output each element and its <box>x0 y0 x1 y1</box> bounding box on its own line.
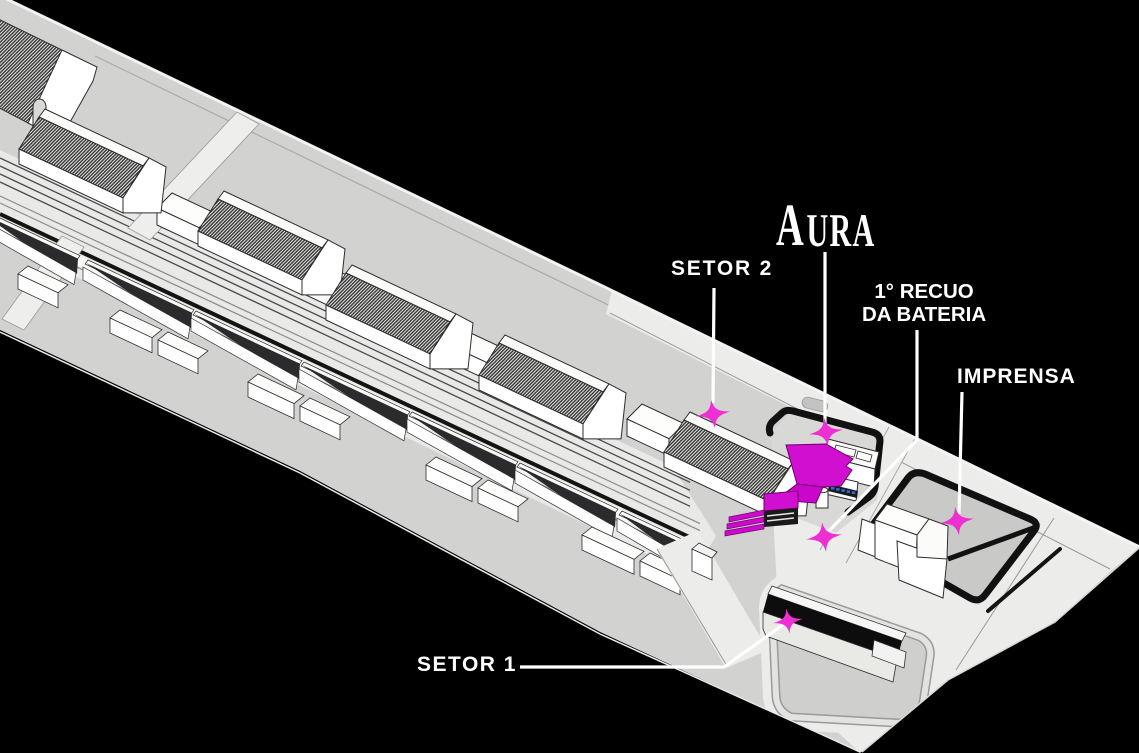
svg-text:A: A <box>776 192 804 258</box>
svg-text:URA: URA <box>807 205 876 257</box>
